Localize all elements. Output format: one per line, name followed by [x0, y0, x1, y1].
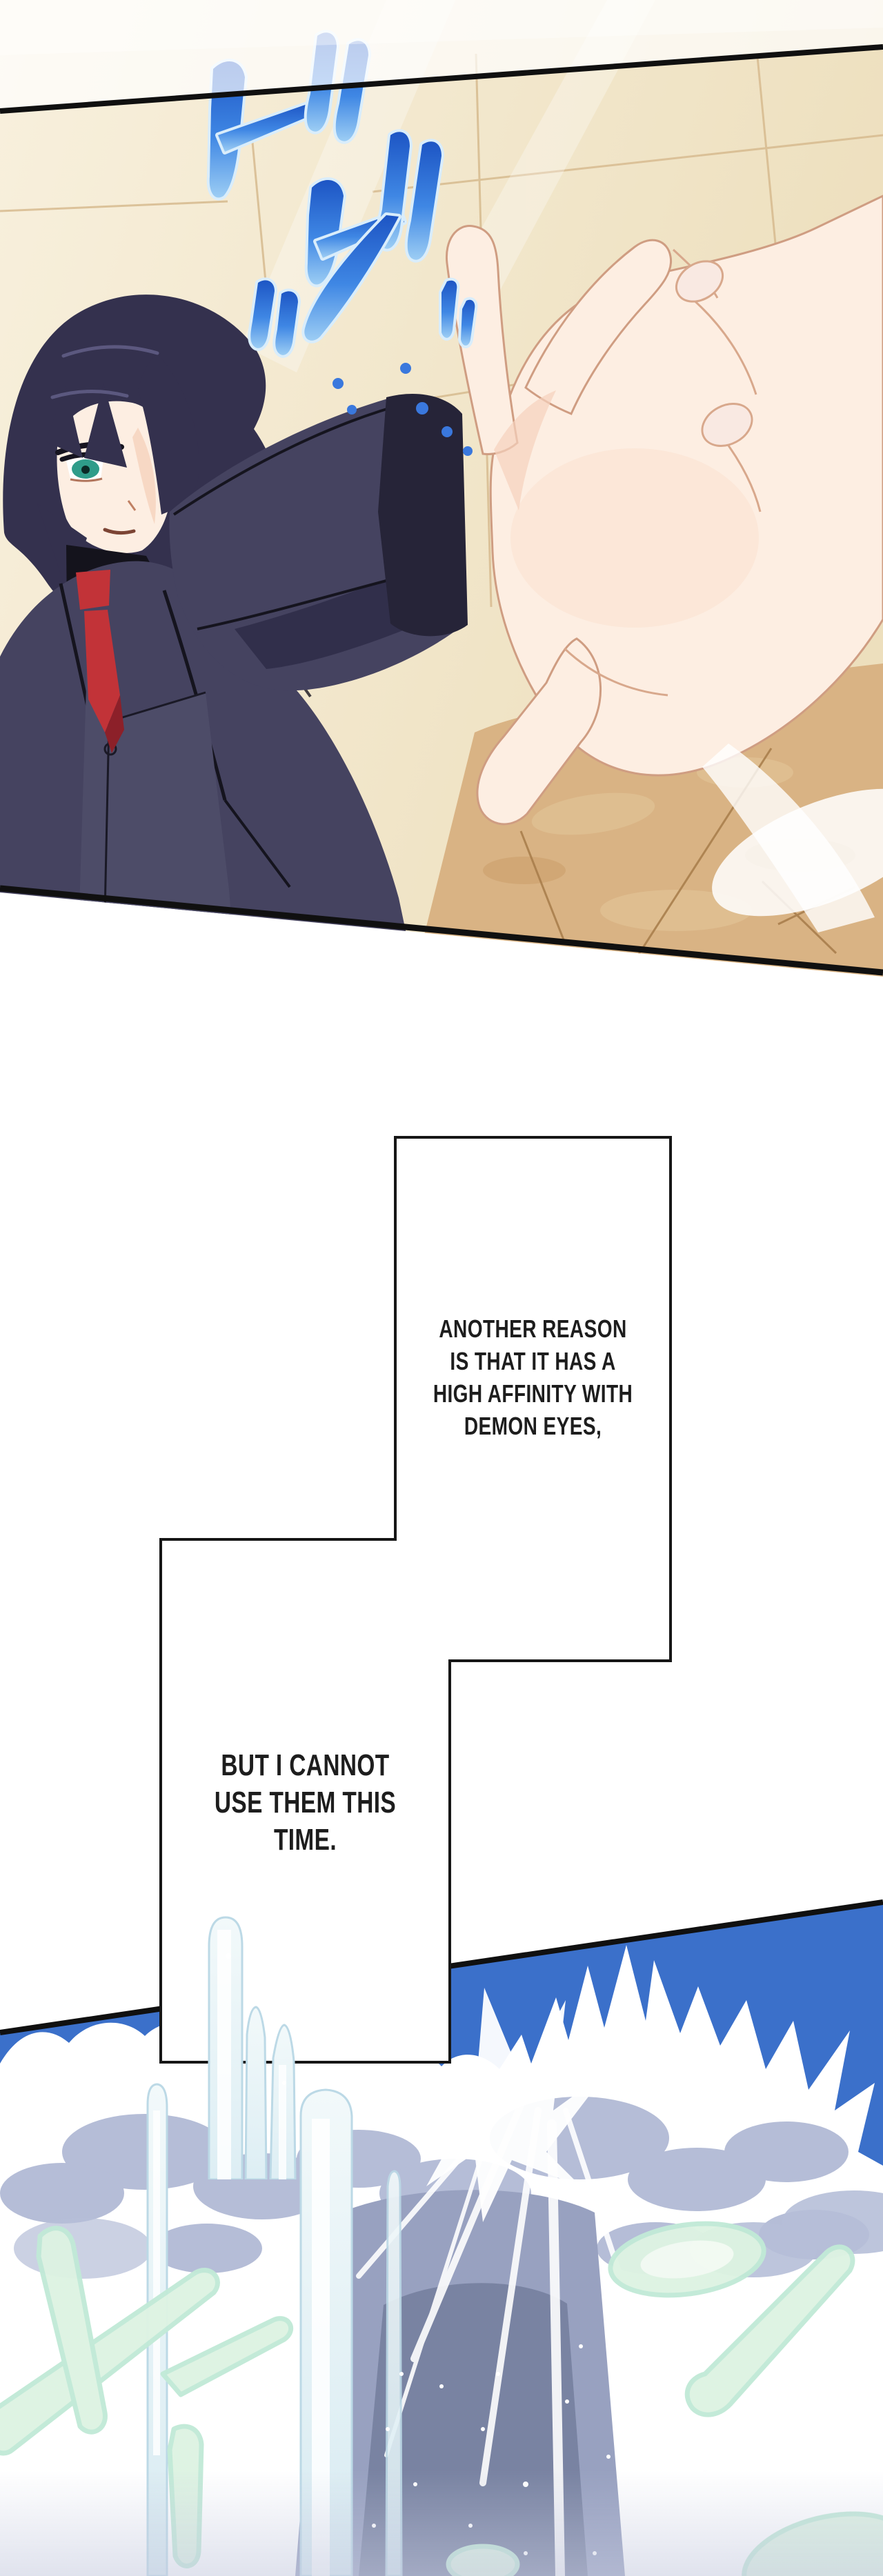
panel-splash-scene — [0, 1862, 883, 2576]
narration-box-1-text: ANOTHER REASON IS THAT IT HAS A HIGH AFF… — [426, 1312, 640, 1442]
panel-action-scene — [0, 0, 883, 979]
bottom-mist-fade — [0, 2469, 883, 2576]
narration-box-2-text: BUT I CANNOT USE THEM THIS TIME. — [195, 1747, 415, 1859]
sleeve-cuff — [378, 394, 468, 636]
manhwa-page: ANOTHER REASON IS THAT IT HAS A HIGH AFF… — [0, 0, 883, 2576]
